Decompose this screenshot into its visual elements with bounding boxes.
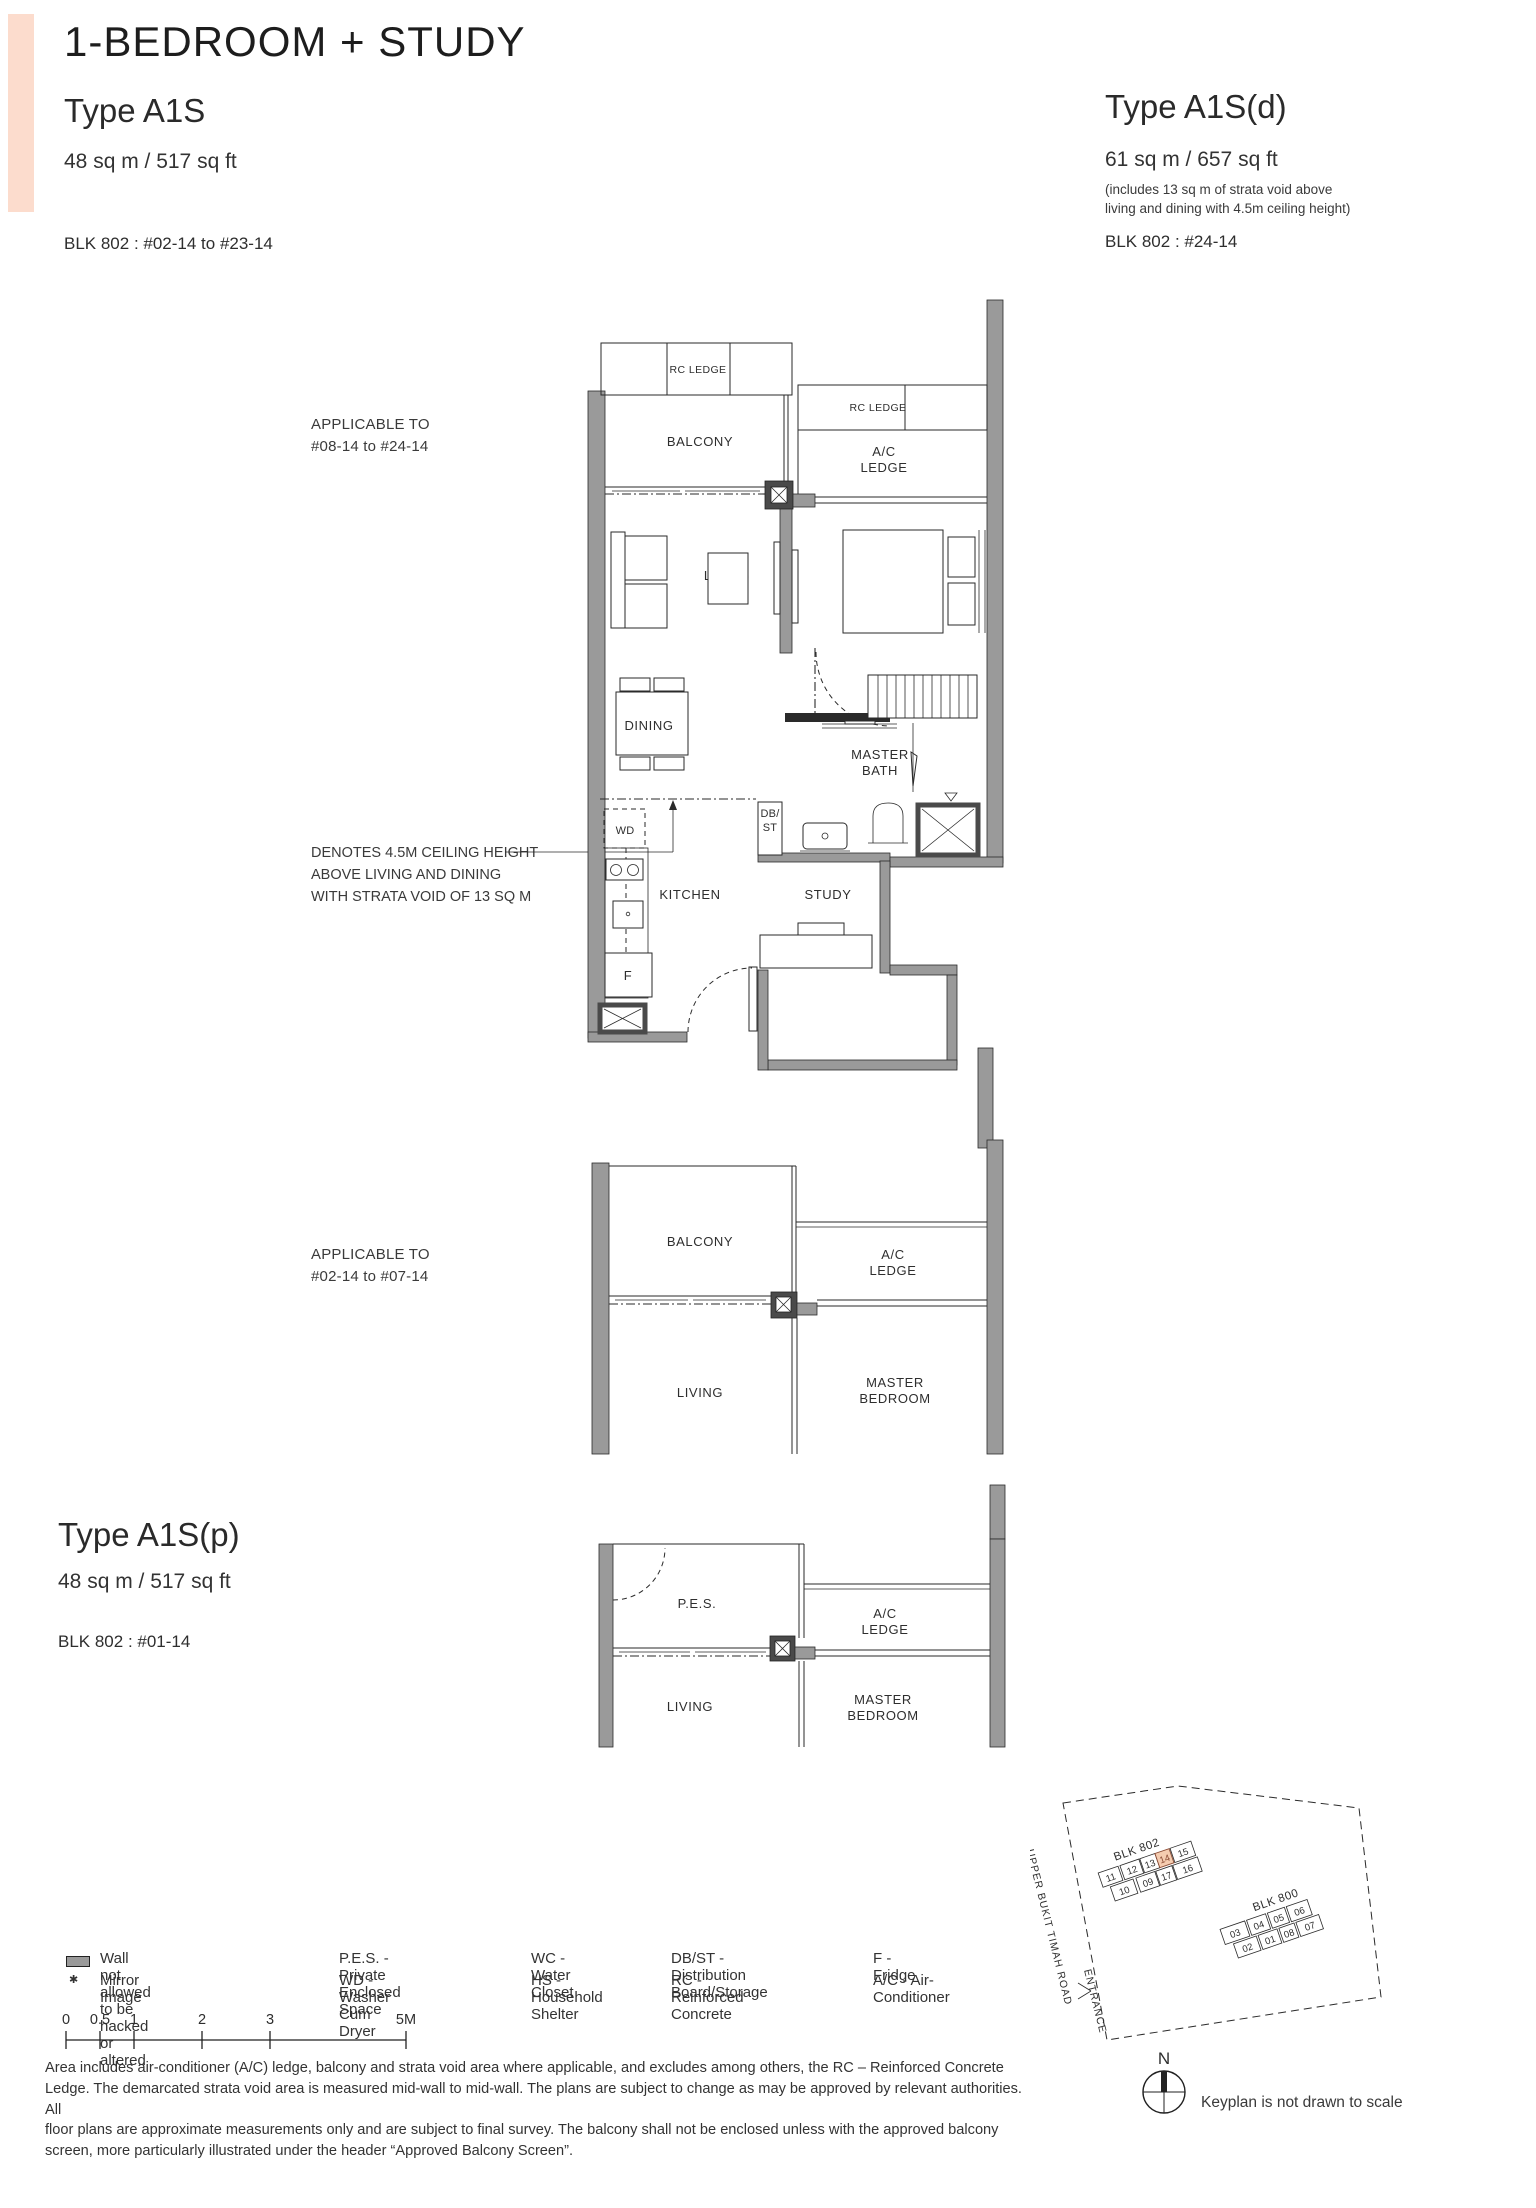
label-dbst-1: DB/ xyxy=(761,808,781,820)
label-master-2-pes: BEDROOM xyxy=(847,1708,918,1723)
label-bath-2: BATH xyxy=(862,763,898,778)
floorplan-pes: P.E.S. A/C LEDGE LIVING MASTER BEDROOM xyxy=(592,1480,1010,1760)
kitchen-sink xyxy=(613,901,643,928)
applicable-note-high: APPLICABLE TO #08-14 to #24-14 xyxy=(311,414,430,458)
scale-3: 3 xyxy=(266,2012,274,2028)
bath-mirror xyxy=(911,752,917,786)
disclaimer-line2: Ledge. The demarcated strata void area i… xyxy=(45,2079,1035,2121)
disclaimer: Area includes air-conditioner (A/C) ledg… xyxy=(45,2058,1035,2162)
label-balcony-mid: BALCONY xyxy=(667,1234,733,1249)
type-a1sd-blk: BLK 802 : #24-14 xyxy=(1105,232,1237,252)
type-a1sd-name: Type A1S(d) xyxy=(1105,88,1287,126)
scale-2: 2 xyxy=(198,2012,206,2028)
keyplan-boundary xyxy=(1063,1786,1381,2040)
wall-right-pes xyxy=(990,1539,1005,1747)
label-living-mid: LIVING xyxy=(677,1385,723,1400)
wall-left xyxy=(588,391,605,1038)
wall-stub-pes xyxy=(990,1485,1005,1539)
wall-right xyxy=(987,300,1003,863)
legend-ac: A/C - Air-Conditioner xyxy=(873,1972,950,2006)
wall-left-pes xyxy=(599,1544,613,1747)
label-master-2-mid: BEDROOM xyxy=(859,1391,930,1406)
wall-right-mid xyxy=(987,1140,1003,1454)
label-ac-1: A/C xyxy=(872,444,895,459)
keyplan: BLK 802 11 12 13 14 15 10 09 17 16 BLK 8… xyxy=(1030,1770,1430,2130)
label-living-pes: LIVING xyxy=(667,1699,713,1714)
wall-study-jog xyxy=(890,965,957,975)
entry-door-arc xyxy=(688,968,752,1032)
legend-hs: HS - Household Shelter xyxy=(531,1972,603,2023)
floorplan-main: RC LEDGE BALCONY RC LEDGE A/C LEDGE LIVI… xyxy=(500,250,1010,1075)
scale-bar: 0 0.5 1 2 3 5M xyxy=(50,2005,430,2055)
label-rc-ledge-2: RC LEDGE xyxy=(850,402,907,414)
wall-stub-upper xyxy=(978,1048,993,1148)
disclaimer-line4: screen, more particularly illustrated un… xyxy=(45,2141,1035,2162)
label-master-1-pes: MASTER xyxy=(854,1692,912,1707)
study-desk xyxy=(760,935,872,968)
bed xyxy=(843,530,943,633)
page-title: 1-BEDROOM + STUDY xyxy=(64,18,526,66)
scale-05: 0.5 xyxy=(90,2012,110,2028)
label-master-1-mid: MASTER xyxy=(866,1375,924,1390)
type-a1sd-note-line2: living and dining with 4.5m ceiling heig… xyxy=(1105,199,1350,218)
label-rc-ledge: RC LEDGE xyxy=(670,364,727,376)
keyplan-entrance: ENTRANCE xyxy=(1081,1968,1109,2035)
legend-wall-swatch xyxy=(66,1956,90,1967)
keyplan-blk802: BLK 802 11 12 13 14 15 10 09 17 16 xyxy=(1093,1827,1202,1904)
sofa xyxy=(611,532,625,628)
type-a1sd-area: 61 sq m / 657 sq ft xyxy=(1105,148,1278,172)
type-a1sd-note-line1: (includes 13 sq m of strata void above xyxy=(1105,180,1350,199)
disclaimer-line3: floor plans are approximate measurements… xyxy=(45,2120,1035,2141)
label-dining: DINING xyxy=(624,718,673,733)
legend-mirror: Mirror Image xyxy=(100,1972,142,2006)
label-bath-1: MASTER xyxy=(851,747,909,762)
tv-console xyxy=(708,553,748,604)
label-fridge: F xyxy=(624,968,633,983)
hob xyxy=(606,859,643,880)
type-a1sp-blk: BLK 802 : #01-14 xyxy=(58,1632,190,1652)
type-a1s-blk: BLK 802 : #02-14 to #23-14 xyxy=(64,234,273,254)
legend-rc: RC - Reinforced Concrete xyxy=(671,1972,744,2023)
label-pes: P.E.S. xyxy=(678,1596,717,1611)
scale-0: 0 xyxy=(62,2012,70,2028)
label-study: STUDY xyxy=(804,887,851,902)
type-a1s-area: 48 sq m / 517 sq ft xyxy=(64,150,237,174)
wall-partition xyxy=(780,507,792,653)
type-a1sd-note: (includes 13 sq m of strata void above l… xyxy=(1105,180,1350,218)
label-balcony: BALCONY xyxy=(667,434,733,449)
denotes-arrow xyxy=(669,800,677,810)
label-wd: WD xyxy=(616,825,635,837)
shower-marker xyxy=(945,793,957,801)
applicable-high-line2: #08-14 to #24-14 xyxy=(311,436,430,458)
label-ac-2-mid: LEDGE xyxy=(869,1263,916,1278)
wardrobe xyxy=(868,675,977,718)
mirror-icon: ✱ xyxy=(69,1973,78,1986)
keyplan-blk800: BLK 800 03 04 05 06 02 01 08 07 xyxy=(1215,1883,1323,1960)
type-a1sp-name: Type A1S(p) xyxy=(58,1516,240,1554)
wall-bath-bottom2 xyxy=(890,857,1003,867)
label-ac-1-mid: A/C xyxy=(881,1247,904,1262)
north-compass-icon xyxy=(1143,2071,1185,2113)
scale-5m: 5M xyxy=(396,2012,416,2028)
vanity xyxy=(803,823,847,849)
wall-study-right xyxy=(880,861,890,973)
disclaimer-line1: Area includes air-conditioner (A/C) ledg… xyxy=(45,2058,1035,2079)
wall-left-mid xyxy=(592,1163,609,1454)
type-a1sp-area: 48 sq m / 517 sq ft xyxy=(58,1570,231,1594)
keyplan-road: UPPER BUKIT TIMAH ROAD xyxy=(1030,1848,1074,2007)
floorplan-page: 1-BEDROOM + STUDY Type A1S 48 sq m / 517… xyxy=(0,0,1536,2208)
applicable-low-line2: #02-14 to #07-14 xyxy=(311,1266,430,1288)
north-label: N xyxy=(1158,2049,1170,2068)
label-ac-2: LEDGE xyxy=(860,460,907,475)
label-ac-2-pes: LEDGE xyxy=(861,1622,908,1637)
floorplan-mid: BALCONY A/C LEDGE LIVING MASTER BEDROOM xyxy=(585,1045,1010,1460)
label-ac-1-pes: A/C xyxy=(873,1606,896,1621)
applicable-low-line1: APPLICABLE TO xyxy=(311,1244,430,1266)
study-monitor xyxy=(798,923,844,935)
pes-gate-arc xyxy=(613,1548,665,1600)
type-a1s-name: Type A1S xyxy=(64,92,205,130)
keyplan-note: Keyplan is not drawn to scale xyxy=(1201,2094,1403,2112)
accent-bar xyxy=(8,14,34,212)
label-kitchen: KITCHEN xyxy=(659,887,720,902)
applicable-high-line1: APPLICABLE TO xyxy=(311,414,430,436)
scale-1: 1 xyxy=(130,2012,138,2028)
applicable-note-low: APPLICABLE TO #02-14 to #07-14 xyxy=(311,1244,430,1288)
label-dbst-2: ST xyxy=(763,822,778,834)
toilet xyxy=(873,803,903,843)
entry-door-leaf xyxy=(749,967,757,1031)
